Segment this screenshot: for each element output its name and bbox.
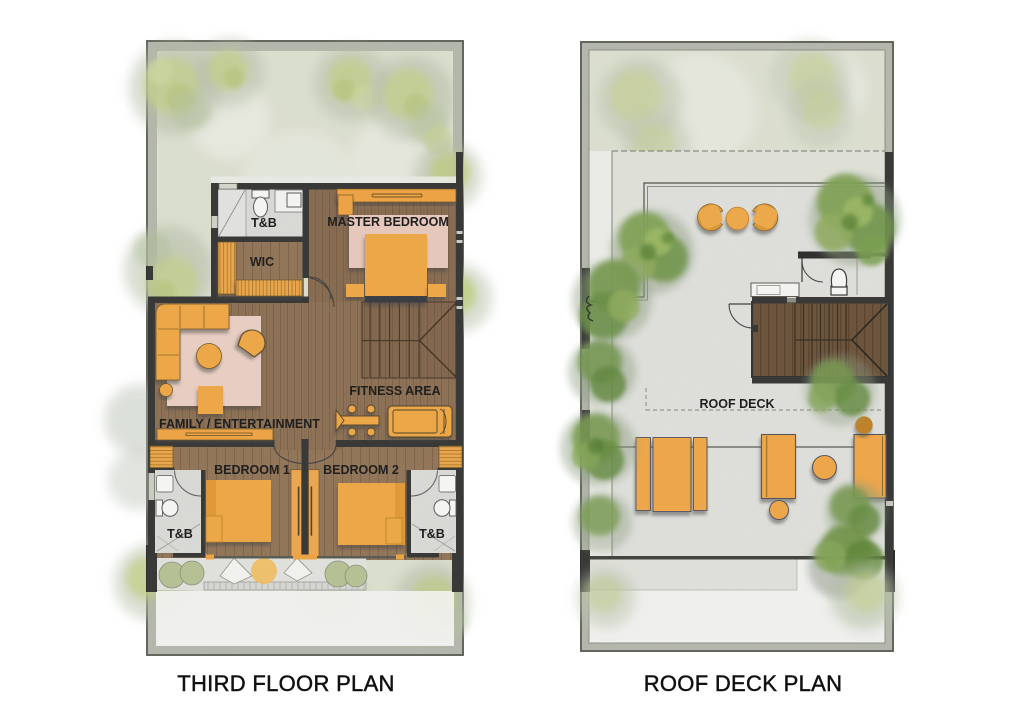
svg-text:ROOF DECK PLAN: ROOF DECK PLAN [644, 671, 843, 696]
svg-text:THIRD FLOOR PLAN: THIRD FLOOR PLAN [177, 671, 395, 696]
